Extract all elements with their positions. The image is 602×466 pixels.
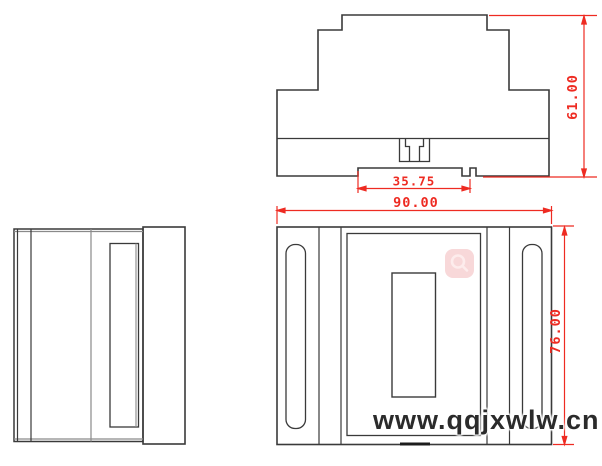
arrow-up-icon [562,227,567,235]
arrow-left-icon [358,186,366,191]
left-side-view [14,227,185,444]
drawing-svg: 61.00 35.75 90.00 76.00 [0,0,602,466]
watermark-url: www.qqjxwlw.cn [373,405,600,436]
profile-outline [277,15,549,176]
arrow-left-icon [277,208,285,213]
side-profile-view [277,15,549,176]
dimension-annotations: 61.00 35.75 90.00 76.00 [277,16,597,445]
side-recess [110,244,139,428]
dim-overall-width: 90.00 [277,195,552,224]
dim-overall-height: 61.00 [483,16,597,178]
magnifier-glyph [445,249,474,278]
side-body [14,229,143,442]
arrow-down-icon [582,169,587,177]
dim-overall-height-label: 61.00 [565,74,581,120]
dim-overall-width-label: 90.00 [393,195,439,211]
front-left-slot [286,245,306,429]
magnifier-icon [445,249,474,278]
front-window [392,273,436,397]
arrow-right-icon [462,186,470,191]
side-body-inner-lines [14,229,143,442]
dim-front-height-label: 76.00 [548,308,564,354]
arrow-right-icon [544,208,552,213]
side-body-vertical-lines [18,229,32,442]
dim-din-channel-width: 35.75 [358,171,470,193]
side-cover-block [143,227,185,444]
arrow-up-icon [582,16,587,24]
dim-din-channel-width-label: 35.75 [393,174,436,189]
arrow-down-icon [562,437,567,445]
din-clip [400,139,430,162]
front-right-slot [523,245,543,429]
drawing-canvas: 61.00 35.75 90.00 76.00 [0,0,602,466]
